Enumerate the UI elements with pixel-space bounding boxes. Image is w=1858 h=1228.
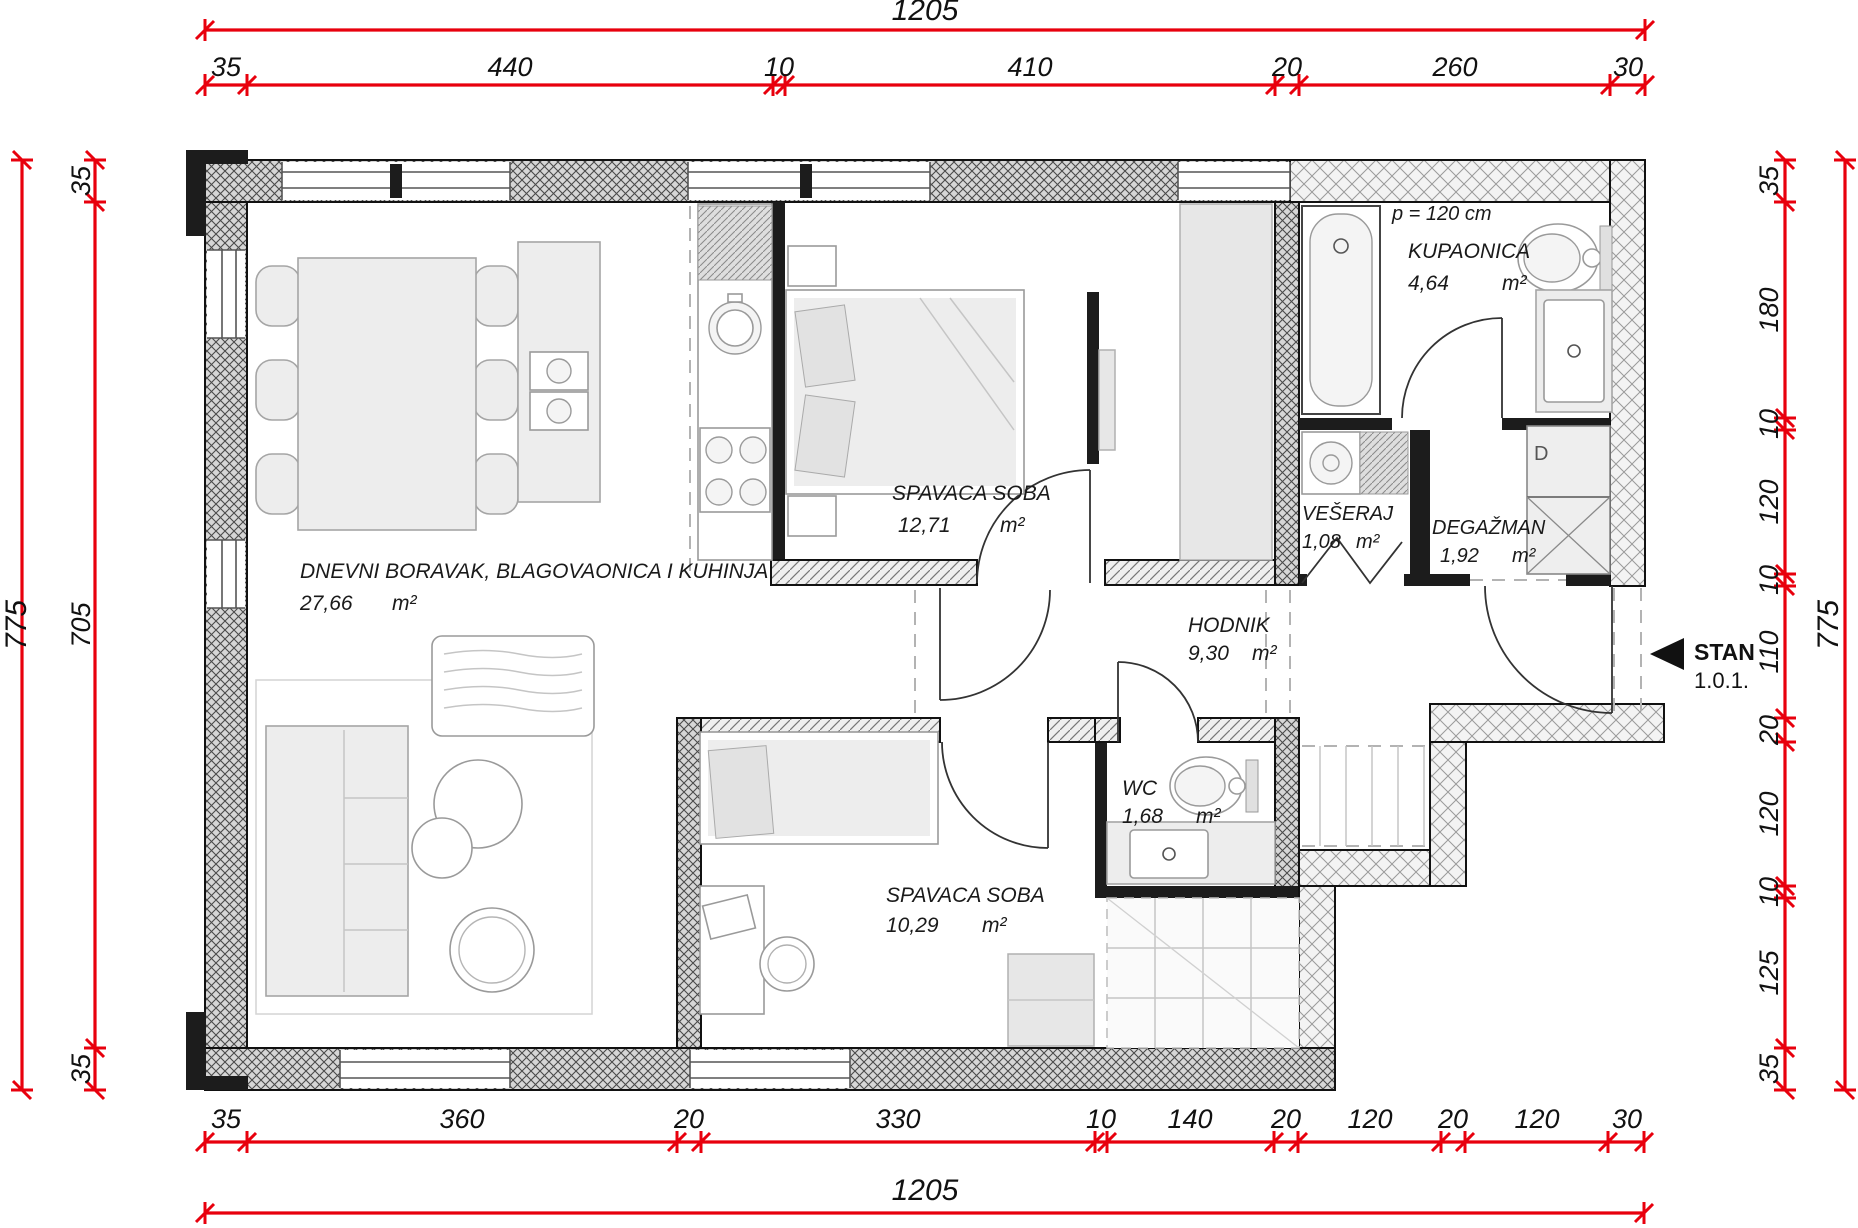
dim-bottom-overall: 1205	[892, 1174, 959, 1207]
wall-wc-east	[1275, 718, 1299, 898]
dining-chair	[256, 360, 300, 420]
apartment-number: 1.0.1.	[1694, 668, 1749, 693]
entrance-arrow-icon	[1650, 638, 1684, 670]
sofa	[266, 726, 408, 996]
wall-top-common	[1290, 160, 1645, 202]
dim-top-seg-6: 30	[1613, 52, 1643, 82]
dim-left-seg-1: 705	[66, 601, 96, 647]
label-living-unit: m²	[392, 592, 417, 615]
label-storage-area: 1,92	[1440, 545, 1479, 567]
dim-top-seg-2: 10	[764, 52, 794, 82]
nightstand	[788, 246, 836, 286]
wall-kitchen-partition	[771, 202, 785, 560]
label-bathroom-area: 4,64	[1408, 272, 1449, 295]
dim-bottom-seg-1: 360	[439, 1104, 484, 1134]
pillow	[795, 395, 855, 477]
bench-throw	[432, 636, 594, 736]
dim-right-seg-2: 10	[1754, 409, 1784, 439]
dining-chair	[474, 360, 518, 420]
pillow	[795, 305, 855, 387]
window-bedroom1-top	[688, 162, 930, 200]
wall-tv-fin	[1087, 292, 1099, 464]
label-laundry-name: VEŠERAJ	[1302, 502, 1394, 525]
dim-bottom-seg-6: 20	[1270, 1104, 1301, 1134]
stair-wall-step-3	[1299, 850, 1430, 886]
label-wc-unit: m²	[1196, 805, 1221, 828]
wall-wc-west	[1095, 718, 1107, 898]
door-bedroom2	[942, 742, 1048, 848]
wall-bedroom1-south-a	[771, 560, 977, 585]
dim-top-overall: 1205	[892, 0, 959, 27]
dim-bottom-seg-2: 20	[673, 1104, 704, 1134]
window-left-1	[207, 250, 245, 338]
dim-right-seg-1: 180	[1754, 287, 1784, 332]
dim-right-overall: 775	[1812, 600, 1845, 650]
window-bedroom2-bottom	[690, 1050, 850, 1088]
wall-bedroom2-west	[677, 718, 701, 1048]
wall-bedroom1-south-b	[1105, 560, 1275, 585]
dim-right-seg-0: 35	[1754, 165, 1784, 196]
dining-chair	[474, 454, 518, 514]
nightstand	[788, 496, 836, 536]
label-bathroom-name: KUPAONICA	[1408, 240, 1530, 263]
stairs	[1320, 746, 1424, 846]
dim-bottom-seg-7: 120	[1347, 1104, 1392, 1134]
dining-chair	[256, 454, 300, 514]
dim-right-seg-4: 10	[1754, 565, 1784, 595]
label-living-name: DNEVNI BORAVAK, BLAGOVAONICA I KUHINJA	[300, 560, 768, 583]
label-bedroom2-name: SPAVACA SOBA	[886, 884, 1045, 907]
dim-bottom-seg-8: 20	[1437, 1104, 1468, 1134]
dining-chair	[474, 266, 518, 326]
label-hallway-unit: m²	[1252, 642, 1277, 665]
dim-right-seg-7: 120	[1754, 791, 1784, 836]
shaft-strip	[1180, 204, 1272, 560]
entrance-marker: STAN 1.0.1.	[1650, 638, 1755, 693]
wall-right	[1610, 160, 1645, 586]
dim-left-seg-0: 35	[66, 165, 96, 196]
label-bedroom1-name: SPAVACA SOBA	[892, 482, 1051, 505]
label-hallway-name: HODNIK	[1188, 614, 1271, 637]
dim-bottom-seg-0: 35	[211, 1104, 242, 1134]
dim-top-seg-4: 20	[1271, 52, 1302, 82]
dimension-chain-bottom: 35 360 20 330 10 140 20 120 20 120 30 12…	[196, 1104, 1653, 1224]
label-laundry-area: 1,08	[1302, 531, 1341, 553]
dim-bottom-seg-5: 140	[1167, 1104, 1212, 1134]
label-bathroom-unit: m²	[1502, 272, 1527, 295]
door-entrance	[1485, 586, 1612, 713]
dim-left-overall: 775	[0, 600, 33, 650]
laundry-counter	[1360, 432, 1408, 494]
dim-right-seg-3: 120	[1754, 479, 1784, 524]
dim-right-seg-6: 20	[1754, 715, 1784, 746]
dim-right-seg-9: 125	[1754, 949, 1784, 995]
label-laundry-unit: m²	[1356, 531, 1381, 553]
dining-table	[298, 258, 476, 530]
label-door-mark: D	[1534, 443, 1548, 465]
wall-wc-south	[1095, 886, 1299, 898]
window-living-bottom	[340, 1050, 510, 1088]
wall-bedroom2-north-b	[1048, 718, 1095, 742]
dim-right-seg-8: 10	[1754, 877, 1784, 907]
window-top-small	[1178, 162, 1290, 200]
label-storage-name: DEGAŽMAN	[1432, 516, 1546, 539]
dim-top-seg-1: 440	[487, 52, 532, 82]
dim-bottom-seg-4: 10	[1086, 1104, 1116, 1134]
pillow	[708, 746, 773, 839]
label-hallway-area: 9,30	[1188, 642, 1229, 665]
dim-top-seg-0: 35	[211, 52, 242, 82]
label-bedroom1-area: 12,71	[898, 514, 951, 537]
label-living-area: 27,66	[299, 592, 353, 615]
dimension-chain-right: 35 180 10 120 10 110 20 120 10 125 35 77…	[1754, 151, 1856, 1099]
pouf	[450, 908, 534, 992]
door-hallway	[940, 588, 1050, 700]
apartment-label: STAN	[1694, 639, 1755, 665]
floor-plan-canvas: 1205 35 440 10 410 20 260 30 35 360 20 3…	[0, 0, 1858, 1228]
dining-chair	[256, 266, 300, 326]
dim-right-seg-5: 110	[1754, 630, 1784, 673]
stair-wall-step-2	[1430, 742, 1466, 886]
side-table	[412, 818, 472, 878]
label-bedroom1-unit: m²	[1000, 514, 1025, 537]
label-wc-area: 1,68	[1122, 805, 1163, 828]
wall-bathroom-west	[1275, 202, 1299, 585]
label-bedroom2-area: 10,29	[886, 914, 939, 937]
dim-top-seg-3: 410	[1007, 52, 1052, 82]
label-storage-unit: m²	[1512, 545, 1537, 567]
door-bathroom	[1402, 318, 1502, 418]
dimension-chain-top: 1205 35 440 10 410 20 260 30	[196, 0, 1654, 96]
furniture-laundry	[1302, 432, 1408, 494]
dim-bottom-seg-9: 120	[1514, 1104, 1559, 1134]
furniture-bathroom	[1302, 206, 1612, 414]
kitchen-tall-cabinet	[698, 206, 772, 280]
dimension-chain-left: 775 35 705 35	[0, 151, 106, 1099]
window-left-2	[207, 540, 245, 608]
dim-bottom-seg-10: 30	[1612, 1104, 1642, 1134]
wall-bathroom-south-a	[1299, 418, 1392, 430]
door-wc	[1118, 662, 1198, 742]
dim-left-seg-2: 35	[66, 1053, 96, 1084]
label-parapet-note: p = 120 cm	[1391, 203, 1492, 225]
floor-plan-page: 1205 35 440 10 410 20 260 30 35 360 20 3…	[0, 0, 1858, 1228]
shaft-grid	[1107, 898, 1299, 1048]
dim-right-seg-10: 35	[1754, 1053, 1784, 1084]
label-bedroom2-unit: m²	[982, 914, 1007, 937]
wall-laundry-storage	[1410, 430, 1430, 574]
stair-wall-step-1	[1430, 704, 1664, 742]
window-living-top	[282, 162, 510, 200]
stair-wall-step-4	[1299, 886, 1335, 1048]
dim-top-seg-5: 260	[1431, 52, 1477, 82]
label-wc-name: WC	[1122, 777, 1158, 800]
dim-bottom-seg-3: 330	[875, 1104, 920, 1134]
